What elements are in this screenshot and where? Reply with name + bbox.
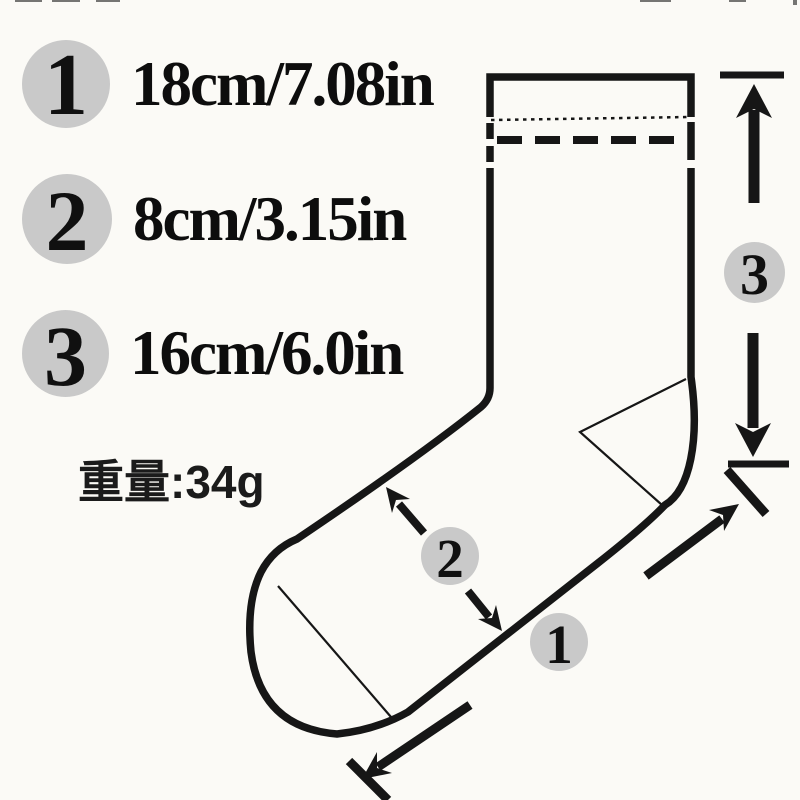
diagram-badge-3-number: 3 [740,246,769,304]
sock-size-infographic: 1 18cm/7.08in 2 8cm/3.15in 3 16cm/6.0in … [0,0,800,800]
toe-seam-line [278,586,391,717]
cuff-outline [490,77,691,117]
dim2-upper-shaft [399,504,424,533]
diagram-badge-1-number: 1 [545,617,573,672]
measure-2-label: 8cm/3.15in [133,188,405,251]
legend-badge-1-number: 1 [44,42,88,130]
dim3-down-arrowhead [735,423,771,457]
dim1-lower-shaft [378,705,470,767]
dim2-lower-shaft [468,591,489,617]
legend-badge-1: 1 [22,40,110,128]
legend-item-3: 3 16cm/6.0in [22,310,402,397]
legend-badge-3-number: 3 [44,313,87,399]
diagram-badge-2-number: 2 [436,531,464,586]
legend-badge-3: 3 [22,310,109,397]
heel-gusset-lines [580,379,686,505]
legend-item-1: 1 18cm/7.08in [22,40,433,128]
measure-1-label: 18cm/7.08in [131,53,433,116]
diagram-badge-3: 3 [724,242,785,303]
dim1-upper-shaft [646,519,722,576]
legend-badge-2: 2 [22,174,112,264]
legend-badge-2-number: 2 [46,178,89,264]
diagram-badge-1: 1 [530,613,588,671]
cuff-dotted-line [491,117,690,120]
diagram-badge-2: 2 [421,527,479,585]
weight-label: 重量:34g [78,459,265,505]
legend-item-2: 2 8cm/3.15in [22,174,405,264]
measure-3-label: 16cm/6.0in [130,322,402,385]
